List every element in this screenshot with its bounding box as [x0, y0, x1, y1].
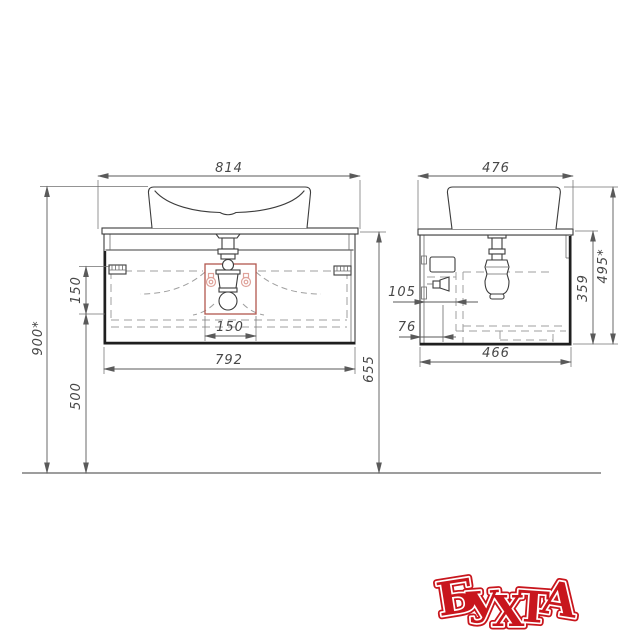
dim-655-label: 655 — [362, 355, 377, 383]
dim-814-label: 814 — [215, 161, 243, 176]
dim-150-center-label: 150 — [216, 320, 244, 335]
dim-476-label: 476 — [482, 161, 510, 176]
dim-466-label: 466 — [482, 346, 510, 361]
front-countertop — [102, 228, 358, 234]
front-left-bracket — [109, 265, 126, 274]
side-sink — [447, 187, 560, 229]
dim-105-label: 105 — [388, 285, 416, 300]
dim-792-label: 792 — [215, 353, 243, 368]
dim-495-label: 495* — [596, 248, 611, 283]
front-sink — [148, 187, 310, 228]
dim-76-label: 76 — [398, 320, 417, 335]
dim-500-label: 500 — [69, 382, 84, 410]
brand-logo: Б У Х Т А Б У Х Т А Б У Х Т А — [433, 567, 583, 636]
drawing-svg: 814 900* 150 500 150 792 655 476 — [0, 0, 640, 640]
logo-text: Б У Х Т А — [433, 567, 583, 636]
dim-359-label: 359 — [576, 274, 591, 302]
side-view — [418, 187, 573, 345]
svg-text:А: А — [537, 570, 583, 629]
dim-150-left-label: 150 — [69, 276, 84, 304]
dim-900-label: 900* — [31, 320, 46, 355]
vanity-dimension-drawing: 814 900* 150 500 150 792 655 476 — [0, 0, 640, 640]
front-right-bracket — [334, 266, 351, 275]
side-countertop — [418, 229, 573, 235]
